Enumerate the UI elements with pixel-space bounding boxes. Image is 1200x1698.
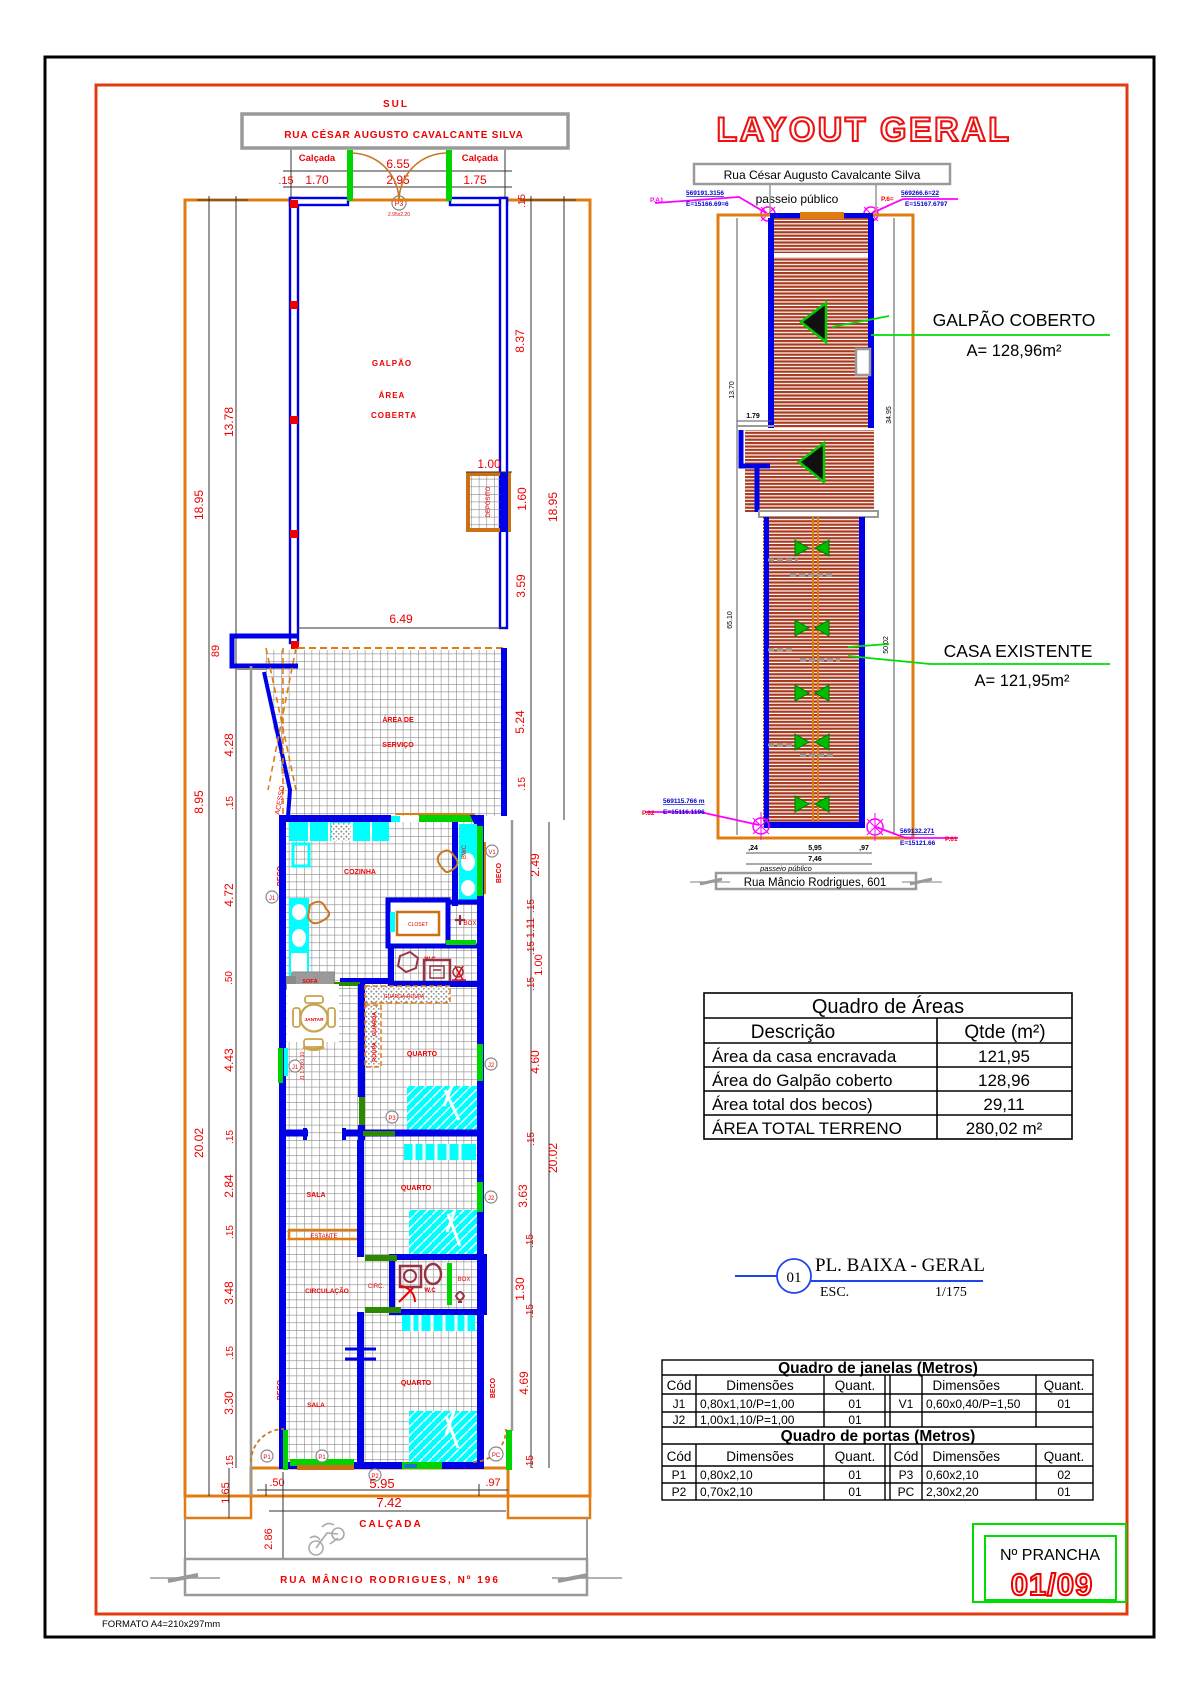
svg-text:2.95x2.20: 2.95x2.20 [388, 212, 410, 218]
svg-text:4.72: 4.72 [222, 883, 236, 907]
svg-text:Quadro de Áreas: Quadro de Áreas [812, 995, 964, 1018]
svg-text:W.C: W.C [424, 1288, 436, 1294]
svg-text:ROUPA: ROUPA [372, 1042, 378, 1061]
svg-text:3.30: 3.30 [222, 1391, 236, 1415]
svg-text:ÁREA: ÁREA [379, 391, 406, 400]
svg-text:.15: .15 [225, 796, 236, 810]
svg-text:BWC: BWC [462, 844, 468, 859]
svg-text:CALÇADA: CALÇADA [359, 1519, 422, 1530]
svg-text:0,80x2,10: 0,80x2,10 [700, 1468, 753, 1482]
svg-text:GUARDA-ROUPA: GUARDA-ROUPA [384, 994, 425, 1000]
svg-text:Descrição: Descrição [751, 1022, 835, 1043]
svg-text:02: 02 [1057, 1468, 1071, 1482]
svg-text:P.6=: P.6= [881, 196, 894, 203]
svg-text:1.60: 1.60 [515, 487, 529, 511]
svg-text:Calçada: Calçada [299, 153, 336, 164]
svg-text:.15: .15 [278, 175, 293, 187]
svg-text:1.30: 1.30 [513, 1277, 527, 1301]
svg-text:569115.766 m: 569115.766 m [663, 798, 705, 805]
svg-text:PL. BAIXA - GERAL: PL. BAIXA - GERAL [815, 1255, 985, 1276]
svg-text:E=15166.69=6: E=15166.69=6 [686, 201, 729, 208]
svg-text:20.02: 20.02 [192, 1128, 206, 1158]
svg-text:7,46: 7,46 [808, 856, 822, 863]
svg-text:SALA: SALA [306, 1192, 325, 1199]
svg-text:01: 01 [848, 1468, 862, 1482]
svg-text:121,95: 121,95 [978, 1047, 1030, 1066]
svg-text:.50: .50 [224, 971, 235, 985]
svg-text:CASA EXISTENTE: CASA EXISTENTE [944, 641, 1093, 661]
svg-text:.15: .15 [526, 1132, 537, 1146]
svg-text:QUARTO: QUARTO [407, 1051, 438, 1058]
svg-text:passeio público: passeio público [759, 864, 812, 873]
svg-text:Nº PRANCHA: Nº PRANCHA [1000, 1547, 1100, 1564]
svg-text:18.95: 18.95 [546, 492, 560, 522]
svg-text:.15: .15 [225, 1346, 236, 1360]
svg-text:18.95: 18.95 [192, 490, 206, 520]
svg-text:6.49: 6.49 [389, 612, 413, 626]
svg-text:GALPÃO COBERTO: GALPÃO COBERTO [933, 309, 1096, 330]
svg-text:,24: ,24 [748, 845, 758, 852]
svg-text:ESC.: ESC. [820, 1285, 849, 1300]
svg-text:BECO: BECO [490, 1377, 497, 1398]
svg-text:1.65: 1.65 [220, 1482, 232, 1503]
svg-text:01: 01 [1057, 1397, 1071, 1411]
svg-text:.50: .50 [269, 1477, 284, 1489]
svg-text:1.70: 1.70 [305, 173, 329, 187]
svg-text:5.24: 5.24 [513, 710, 527, 734]
svg-text:Rua Mâncio Rodrigues, 601: Rua Mâncio Rodrigues, 601 [744, 877, 887, 889]
svg-text:.15: .15 [517, 777, 528, 791]
svg-text:128,96: 128,96 [978, 1071, 1030, 1090]
svg-text:1/175: 1/175 [935, 1285, 967, 1300]
svg-text:.15: .15 [525, 1455, 536, 1469]
svg-text:01: 01 [787, 1270, 802, 1286]
svg-text:3.48: 3.48 [222, 1281, 236, 1305]
svg-text:.15: .15 [225, 1130, 236, 1144]
svg-text:SERVIÇO: SERVIÇO [382, 742, 414, 749]
svg-text:01: 01 [848, 1413, 862, 1427]
svg-text:Quadro de janelas (Metros): Quadro de janelas (Metros) [778, 1360, 978, 1377]
svg-text:J2: J2 [488, 1196, 495, 1202]
svg-text:V1: V1 [899, 1397, 914, 1411]
svg-text:ESTANTE: ESTANTE [310, 1234, 337, 1240]
svg-text:1.00: 1.00 [477, 457, 501, 471]
svg-text:5,95: 5,95 [808, 845, 822, 852]
svg-text:J1: J1 [269, 896, 276, 902]
svg-text:280,02 m²: 280,02 m² [966, 1119, 1043, 1138]
svg-text:P.A1: P.A1 [650, 197, 664, 204]
svg-text:1.11: 1.11 [525, 918, 537, 939]
svg-text:1.79: 1.79 [746, 413, 760, 420]
svg-text:2.84: 2.84 [222, 1174, 236, 1198]
svg-text:GALPÃO: GALPÃO [372, 359, 412, 368]
svg-text:Área total dos becos): Área total dos becos) [712, 1095, 873, 1114]
svg-text:0,70x2,10: 0,70x2,10 [700, 1485, 753, 1499]
svg-text:Quant.: Quant. [1044, 1449, 1085, 1464]
svg-text:A= 121,95m²: A= 121,95m² [975, 672, 1070, 690]
svg-text:PC: PC [492, 1453, 501, 1459]
svg-text:.15: .15 [517, 194, 528, 208]
svg-text:P1: P1 [672, 1468, 687, 1482]
svg-text:01: 01 [848, 1485, 862, 1499]
svg-text:.15: .15 [225, 1455, 236, 1469]
svg-text:CIRCULAÇÃO: CIRCULAÇÃO [305, 1286, 349, 1295]
svg-text:.15: .15 [525, 1234, 536, 1248]
svg-text:.15: .15 [526, 941, 537, 955]
svg-text:Cód: Cód [667, 1449, 692, 1464]
svg-text:ÁREA DE: ÁREA DE [382, 715, 414, 724]
svg-text:.15: .15 [526, 899, 537, 913]
svg-text:3.63: 3.63 [516, 1184, 530, 1208]
svg-text:P1: P1 [318, 1455, 326, 1461]
svg-text:01: 01 [848, 1397, 862, 1411]
svg-text:29,11: 29,11 [983, 1095, 1024, 1114]
svg-text:P3: P3 [899, 1468, 914, 1482]
svg-text:65.10: 65.10 [727, 611, 734, 629]
svg-text:Quant.: Quant. [1044, 1378, 1085, 1393]
svg-text:Dimensões: Dimensões [726, 1449, 794, 1464]
svg-text:1.00: 1.00 [533, 954, 545, 975]
svg-text:.15: .15 [225, 1225, 236, 1239]
svg-text:1,00x1,10/P=1,00: 1,00x1,10/P=1,00 [700, 1413, 795, 1427]
svg-text:2.49: 2.49 [528, 853, 542, 877]
svg-text:LAYOUT GERAL: LAYOUT GERAL [716, 111, 1011, 149]
svg-text:GUARDA: GUARDA [372, 1012, 378, 1036]
svg-text:0,60x2,10: 0,60x2,10 [926, 1468, 979, 1482]
svg-text:Quant.: Quant. [835, 1378, 876, 1393]
svg-text:Rua César Augusto Cavalcante S: Rua César Augusto Cavalcante Silva [724, 168, 921, 182]
svg-text:P.61: P.61 [945, 836, 958, 843]
svg-text:SUL: SUL [383, 99, 409, 110]
svg-text:Calçada: Calçada [462, 153, 499, 164]
svg-text:13.70: 13.70 [729, 381, 736, 399]
svg-text:Cód: Cód [894, 1449, 919, 1464]
svg-text:A= 128,96m²: A= 128,96m² [967, 342, 1062, 360]
svg-text:DEPÓSITO: DEPÓSITO [485, 486, 492, 517]
svg-text:ÁREA TOTAL TERRENO: ÁREA TOTAL TERRENO [712, 1119, 902, 1138]
svg-text:CLOSET: CLOSET [408, 922, 428, 928]
svg-text:20.02: 20.02 [546, 1143, 560, 1173]
svg-text:4.69: 4.69 [517, 1371, 531, 1395]
svg-text:COZINHA: COZINHA [344, 869, 376, 876]
svg-text:passeio público: passeio público [756, 192, 839, 206]
svg-text:BOX: BOX [464, 921, 477, 927]
svg-text:Quadro de portas (Metros): Quadro de portas (Metros) [781, 1428, 976, 1445]
svg-text:4.60: 4.60 [528, 1050, 542, 1074]
svg-text:,97: ,97 [859, 845, 869, 852]
svg-text:569132.271: 569132.271 [900, 828, 935, 835]
svg-text:Dimensões: Dimensões [932, 1378, 1000, 1393]
svg-text:JANTAR: JANTAR [304, 1017, 324, 1023]
svg-text:5.95: 5.95 [369, 1476, 394, 1491]
svg-text:RUA MÂNCIO RODRIGUES, Nº 1: RUA MÂNCIO RODRIGUES, Nº 196 [280, 1573, 500, 1586]
svg-text:RUA CÉSAR AUGUSTO CAVALCANTE S: RUA CÉSAR AUGUSTO CAVALCANTE SILVA [284, 128, 523, 141]
svg-text:BECO: BECO [496, 862, 503, 883]
svg-text:E=15116.1196: E=15116.1196 [663, 809, 705, 816]
svg-text:Qtde (m²): Qtde (m²) [964, 1022, 1045, 1043]
svg-text:QUARTO: QUARTO [401, 1380, 432, 1387]
svg-text:P3: P3 [388, 1116, 396, 1122]
svg-text:FORMATO A4=210x297mm: FORMATO A4=210x297mm [102, 1619, 220, 1630]
svg-text:1.75: 1.75 [463, 173, 487, 187]
svg-text:.97: .97 [485, 1477, 500, 1489]
svg-text:8.37: 8.37 [513, 329, 527, 353]
svg-text:E=15167.6797: E=15167.6797 [905, 201, 948, 208]
svg-text:SALA: SALA [307, 1402, 325, 1409]
svg-text:CIRC.: CIRC. [368, 1284, 385, 1290]
svg-text:J1: J1 [292, 1065, 299, 1071]
svg-text:QUARTO: QUARTO [401, 1185, 432, 1192]
svg-text:0,60x0,40/P=1,50: 0,60x0,40/P=1,50 [926, 1397, 1021, 1411]
svg-text:13.78: 13.78 [222, 407, 236, 437]
svg-text:8.95: 8.95 [192, 790, 206, 814]
svg-text:7.42: 7.42 [376, 1495, 401, 1510]
svg-text:Quant.: Quant. [835, 1449, 876, 1464]
svg-text:Área da casa encravada: Área da casa encravada [712, 1047, 897, 1066]
svg-text:PC: PC [898, 1485, 915, 1499]
svg-text:2,30x2,20: 2,30x2,20 [926, 1485, 979, 1499]
svg-text:J2: J2 [673, 1413, 686, 1427]
svg-text:34.95: 34.95 [886, 406, 893, 424]
svg-text:4.43: 4.43 [222, 1048, 236, 1072]
svg-text:Cód: Cód [667, 1378, 692, 1393]
svg-text:.15: .15 [526, 977, 537, 991]
svg-text:3.59: 3.59 [514, 574, 528, 598]
svg-text:P2: P2 [672, 1485, 687, 1499]
svg-text:E=15121.66: E=15121.66 [900, 840, 936, 847]
svg-text:4.28: 4.28 [222, 733, 236, 757]
svg-text:Área do Galpão coberto: Área do Galpão coberto [712, 1071, 893, 1090]
svg-text:01: 01 [1057, 1485, 1071, 1499]
svg-text:01/09: 01/09 [1011, 1567, 1094, 1602]
svg-text:569191.3156: 569191.3156 [686, 190, 724, 197]
svg-text:P.62: P.62 [642, 810, 655, 817]
svg-text:Dimensões: Dimensões [726, 1378, 794, 1393]
svg-text:V1: V1 [488, 850, 496, 856]
svg-text:SOFÁ: SOFÁ [302, 978, 317, 985]
svg-text:.15: .15 [525, 1304, 536, 1318]
svg-text:89: 89 [210, 645, 222, 657]
svg-text:P1: P1 [263, 1455, 271, 1461]
svg-text:J1: J1 [673, 1397, 686, 1411]
svg-text:COBERTA: COBERTA [371, 411, 417, 420]
svg-text:BOX: BOX [458, 1277, 471, 1283]
svg-text:P3: P3 [395, 201, 404, 208]
svg-text:Dimensões: Dimensões [932, 1449, 1000, 1464]
svg-text:6.55: 6.55 [386, 157, 410, 171]
svg-text:2.86: 2.86 [263, 1528, 275, 1549]
svg-text:J2: J2 [488, 1063, 495, 1069]
svg-text:569266.6=22: 569266.6=22 [901, 190, 940, 197]
svg-text:0,80x1,10/P=1,00: 0,80x1,10/P=1,00 [700, 1397, 795, 1411]
